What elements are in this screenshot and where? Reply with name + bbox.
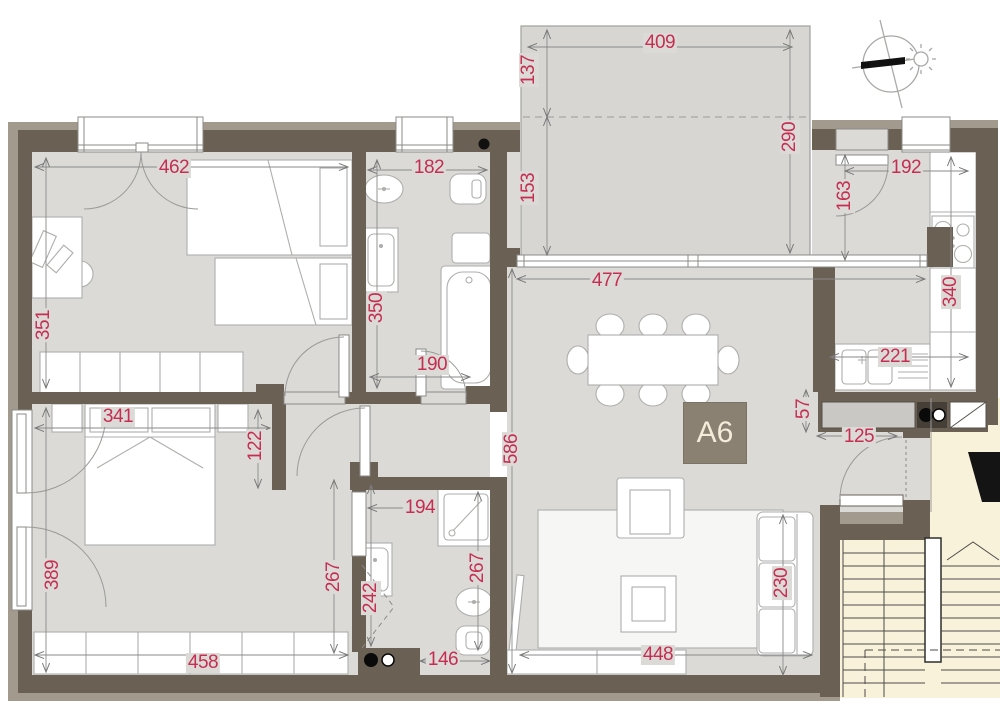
armchair [617, 478, 684, 538]
coffee-table [621, 576, 676, 632]
dimension-label: 477 [590, 271, 624, 291]
dimension-label: 267 [468, 551, 488, 585]
kitchen-window [902, 117, 950, 152]
dimension-label: 340 [941, 275, 961, 309]
single-bed [215, 258, 352, 325]
unit-label: A6 [683, 402, 747, 464]
dimension-label: 194 [403, 498, 437, 518]
dimension-label: 458 [186, 653, 220, 673]
floor-plan: A6 4621824091371532901921633513501904773… [0, 0, 1000, 725]
dimension-label: 350 [367, 291, 387, 325]
single-bed [187, 160, 352, 255]
dimension-label: 409 [643, 33, 677, 53]
dimension-label: 137 [519, 53, 539, 87]
dimension-label: 57 [794, 397, 814, 421]
dimension-label: 389 [43, 558, 63, 592]
appliance-band [822, 402, 986, 428]
dimension-label: 586 [502, 432, 522, 466]
dimension-label: 341 [101, 407, 135, 427]
dimension-label: 146 [426, 650, 460, 670]
compass-icon [852, 20, 936, 108]
bidet-icon [365, 175, 403, 203]
dimension-label: 190 [415, 355, 449, 375]
stair-railing [925, 538, 941, 662]
dimension-label: 153 [519, 171, 539, 205]
dimension-label: 351 [34, 308, 54, 342]
stairwell-floor [840, 540, 1000, 698]
dimension-label: 192 [889, 158, 923, 178]
dimension-label: 448 [641, 645, 675, 665]
bathtub [441, 266, 497, 389]
kitchen-counter [930, 152, 976, 390]
dimension-label: 290 [780, 120, 800, 154]
dimension-label: 125 [842, 427, 876, 447]
bathroom-sink [364, 228, 398, 292]
dimension-label: 221 [878, 347, 912, 367]
toilet-icon [456, 626, 490, 655]
dimension-label: 230 [772, 566, 792, 600]
window [396, 117, 453, 152]
bidet-icon [456, 588, 492, 616]
dimension-label: 462 [157, 158, 191, 178]
shower [438, 488, 494, 546]
dimension-label: 267 [324, 560, 344, 594]
bath-cabinet [452, 233, 490, 263]
column-dot [479, 139, 490, 150]
dimension-label: 163 [835, 179, 855, 213]
terrace-floor [521, 26, 810, 256]
toilet-icon [450, 174, 486, 204]
dimension-label: 122 [246, 429, 266, 463]
wardrobe [40, 352, 243, 394]
dining-table [588, 335, 718, 385]
floor-plan-drawing [0, 0, 1000, 725]
living-room-window-wall [517, 255, 927, 267]
dimension-label: 182 [412, 158, 446, 178]
north-needle [861, 57, 905, 69]
dimension-label: 242 [361, 581, 381, 615]
